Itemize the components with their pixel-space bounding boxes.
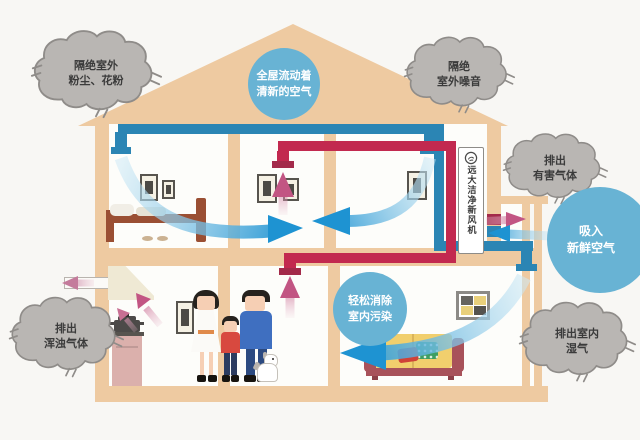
- exhaust-arrow-machine-out: [486, 212, 526, 227]
- cloud-label-moisture: 排出室内 湿气: [518, 298, 636, 384]
- fresh-air-arrow-upper-right: [312, 158, 430, 235]
- ventilation-diagram: 远大洁净新风机: [0, 0, 640, 440]
- bubble-line: 清新的空气: [257, 84, 312, 100]
- cloud-line: 排出: [544, 153, 566, 168]
- cloud-turbid-text: 排出 浑浊气体: [8, 293, 124, 379]
- bubble-line: 全屋流动着: [257, 68, 312, 84]
- exhaust-arrow-upper-room: [272, 172, 294, 215]
- cloud-line: 排出: [55, 321, 77, 336]
- cloud-line: 有害气体: [533, 168, 577, 183]
- cloud-line: 粉尘、花粉: [69, 73, 124, 88]
- cloud-line: 隔绝室外: [74, 58, 118, 73]
- exhaust-arrow-hood-outside: [62, 276, 94, 290]
- cloud-dust-text: 隔绝室外 粉尘、花粉: [30, 26, 162, 120]
- cloud-noise-text: 隔绝 室外噪音: [403, 33, 515, 115]
- cloud-moisture-text: 排出室内 湿气: [518, 298, 636, 384]
- cloud-label-noise: 隔绝 室外噪音: [403, 33, 515, 115]
- bubble-line: 轻松消除: [348, 293, 392, 309]
- fresh-air-arrow-machine-in: [488, 225, 552, 242]
- bubble-fresh-flow: 全屋流动着 清新的空气: [248, 48, 320, 120]
- cloud-line: 湿气: [566, 341, 588, 356]
- cloud-label-turbid-gas: 排出 浑浊气体: [8, 293, 124, 379]
- exhaust-arrow-kitchen: [136, 293, 160, 325]
- exhaust-arrow-lower-room: [280, 276, 300, 318]
- cloud-line: 室外噪音: [437, 74, 481, 89]
- fresh-air-arrow-bedroom: [121, 158, 303, 243]
- bubble-pollution: 轻松消除 室内污染: [333, 272, 407, 346]
- cloud-line: 排出室内: [555, 326, 599, 341]
- bubble-line: 新鲜空气: [567, 240, 615, 257]
- cloud-line: 浑浊气体: [44, 336, 88, 351]
- cloud-line: 隔绝: [448, 59, 470, 74]
- bubble-line: 吸入: [579, 223, 603, 240]
- bubble-line: 室内污染: [348, 309, 392, 325]
- cloud-label-dust: 隔绝室外 粉尘、花粉: [30, 26, 162, 120]
